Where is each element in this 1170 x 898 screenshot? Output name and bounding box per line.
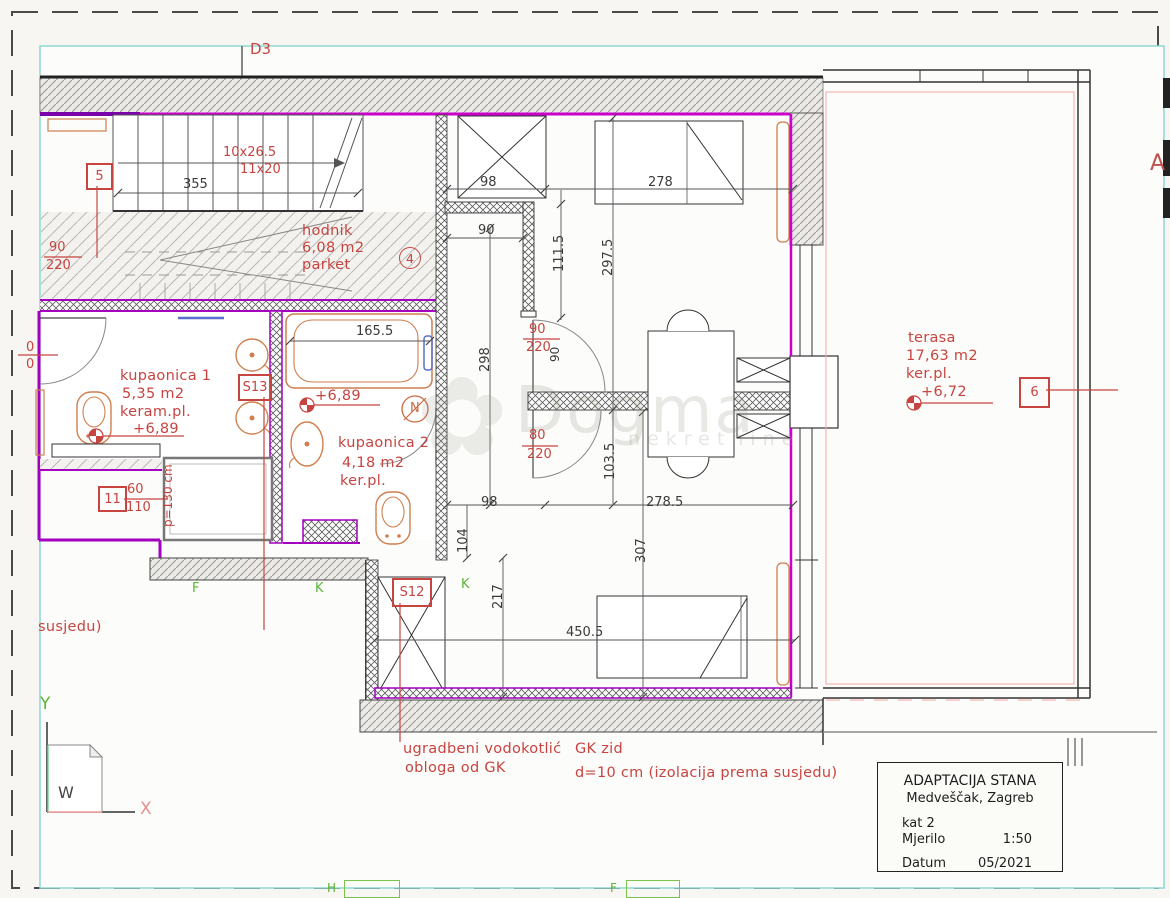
room-kupaonica1-area: 5,35 m2 [122,387,184,402]
title-block: ADAPTACIJA STANA Medveščak, Zagreb kat 2… [877,762,1063,872]
stair-run-label: 10x26.5 [223,146,276,160]
dim-door2-den: 220 [527,448,552,462]
dim-111-5: 111.5 [553,235,567,272]
title-block-date-label: Datum [902,856,946,871]
room-kupaonica2-level: +6,89 [315,389,361,404]
title-block-date-value: 05/2021 [978,856,1032,871]
dim-box11-den: 110 [126,501,151,515]
dim-partial-den: 0 [26,358,34,372]
room-kupaonica2-name: kupaonica 2 [338,436,429,451]
note-gk-line1: GK zid [575,742,623,757]
dim-307: 307 [635,538,649,563]
dim-165-5: 165.5 [356,325,393,339]
stair-riser-label: 11x20 [240,163,281,177]
marker-circle-4-label: 4 [406,251,414,266]
marker-box-s12-label: S12 [400,585,425,600]
dim-door1-num: 90 [529,323,546,337]
dim-103-5: 103.5 [604,443,618,480]
bottom-letter-f: F [610,882,617,895]
dim-98-mid: 98 [481,496,498,510]
dim-90-top: 90 [478,224,495,238]
axis-w-label: W [58,785,74,802]
door-label-d3: D3 [250,42,271,58]
dim-90-door: 90 [549,347,562,362]
room-hodnik-finish: parket [302,258,350,273]
dim-parapet-130: p=130 cm [162,464,175,527]
marker-box-11-label: 11 [104,492,121,507]
bottom-green-box-2 [626,880,680,898]
dim-opening-left-num: 90 [49,241,66,255]
room-hodnik-area: 6,08 m2 [302,241,364,256]
marker-box-6-label: 6 [1030,385,1038,400]
note-gk-line2: d=10 cm (izolacija prema susjedu) [575,766,837,781]
marker-box-5-label: 5 [95,169,103,184]
dim-box11-num: 60 [127,483,144,497]
dim-98-top: 98 [480,176,497,190]
room-kupaonica2-finish: ker.pl. [340,474,386,489]
marker-box-s13: S13 [238,374,272,401]
axis-x-label: X [140,801,152,819]
title-block-floor: kat 2 [902,816,935,831]
room-kupaonica1-level: +6,89 [133,422,179,437]
axis-y-label: Y [40,696,50,714]
dim-297-5: 297.5 [602,239,616,276]
note-neighbor: susjedu) [38,620,102,635]
marker-circle-4: 4 [399,247,421,269]
title-block-scale-label: Mjerilo [902,832,945,847]
dim-partial-num: 0 [26,341,34,355]
dim-298: 298 [479,347,493,372]
title-block-project: ADAPTACIJA STANA [878,773,1062,789]
dim-450-5: 450.5 [566,626,603,640]
dim-217: 217 [492,584,506,609]
note-cistern-line2: obloga od GK [405,761,506,776]
room-terasa-level: +6,72 [921,385,967,400]
bottom-green-box-1 [344,880,400,898]
letter-k-right: K [461,578,470,592]
room-terasa-name: terasa [908,331,956,346]
title-block-scale-value: 1:50 [1003,832,1032,847]
north-symbol-label: N [410,402,420,416]
dim-278: 278 [648,176,673,190]
letter-k-left: K [315,582,324,596]
dim-278-5: 278.5 [646,496,683,510]
dim-door1-den: 220 [526,341,551,355]
room-kupaonica2-area: 4,18 m2 [342,456,404,471]
dim-104: 104 [457,528,471,553]
marker-box-5: 5 [86,163,113,190]
title-block-location: Medveščak, Zagreb [878,791,1062,806]
floor-plan-page: ✿ Dogma nekretnine D3 10x26.5 11x20 355 … [0,0,1170,898]
room-kupaonica1-finish: keram.pl. [120,405,191,420]
room-terasa-finish: ker.pl. [906,367,952,382]
bottom-letter-h: H [327,882,336,895]
marker-box-6: 6 [1019,377,1050,408]
marker-box-s13-label: S13 [243,380,268,395]
dim-door2-num: 80 [529,429,546,443]
note-cistern-line1: ugradbeni vodokotlić [403,742,561,757]
marker-box-s12: S12 [392,578,432,607]
room-hodnik-name: hodnik [302,224,353,239]
dim-355: 355 [183,178,208,192]
letter-f: F [192,582,199,596]
section-letter-a: A [1150,152,1165,175]
dim-opening-left-den: 220 [46,259,71,273]
marker-box-11: 11 [98,486,127,512]
room-kupaonica1-name: kupaonica 1 [120,369,211,384]
room-terasa-area: 17,63 m2 [906,349,978,364]
